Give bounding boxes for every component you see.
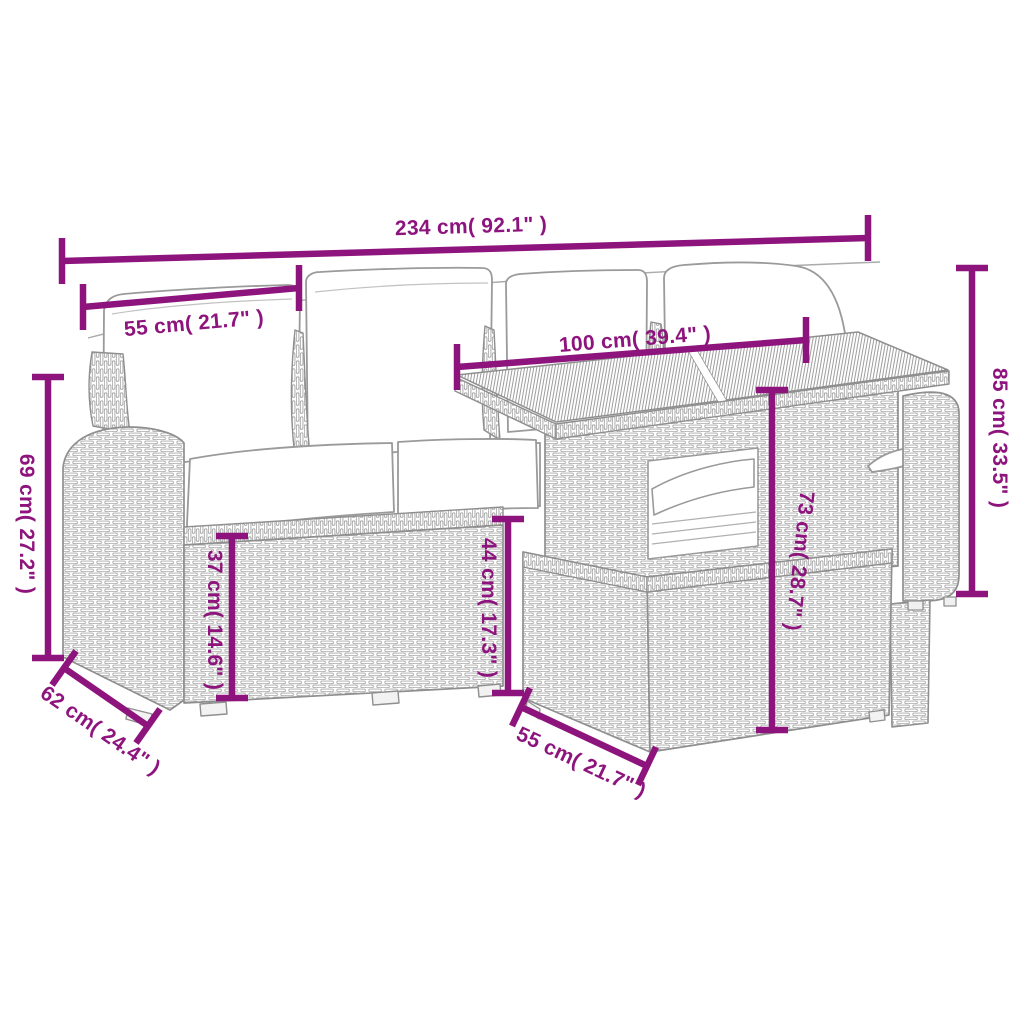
furniture-line-art [0,0,1024,1024]
footstool [523,549,892,752]
dim-label-table-height: 85 cm( 33.5" ) [987,368,1011,508]
dim-label-overall-width: 234 cm( 92.1" ) [395,213,548,242]
dim-label-armrest-height: 69 cm( 27.2" ) [14,454,38,594]
dim-label-base-height: 37 cm( 14.6" ) [202,550,226,690]
dim-label-seat-height: 44 cm( 17.3" ) [476,538,500,678]
product-dimension-diagram: 234 cm( 92.1" ) 55 cm( 21.7" ) 100 cm( 3… [0,0,1024,1024]
